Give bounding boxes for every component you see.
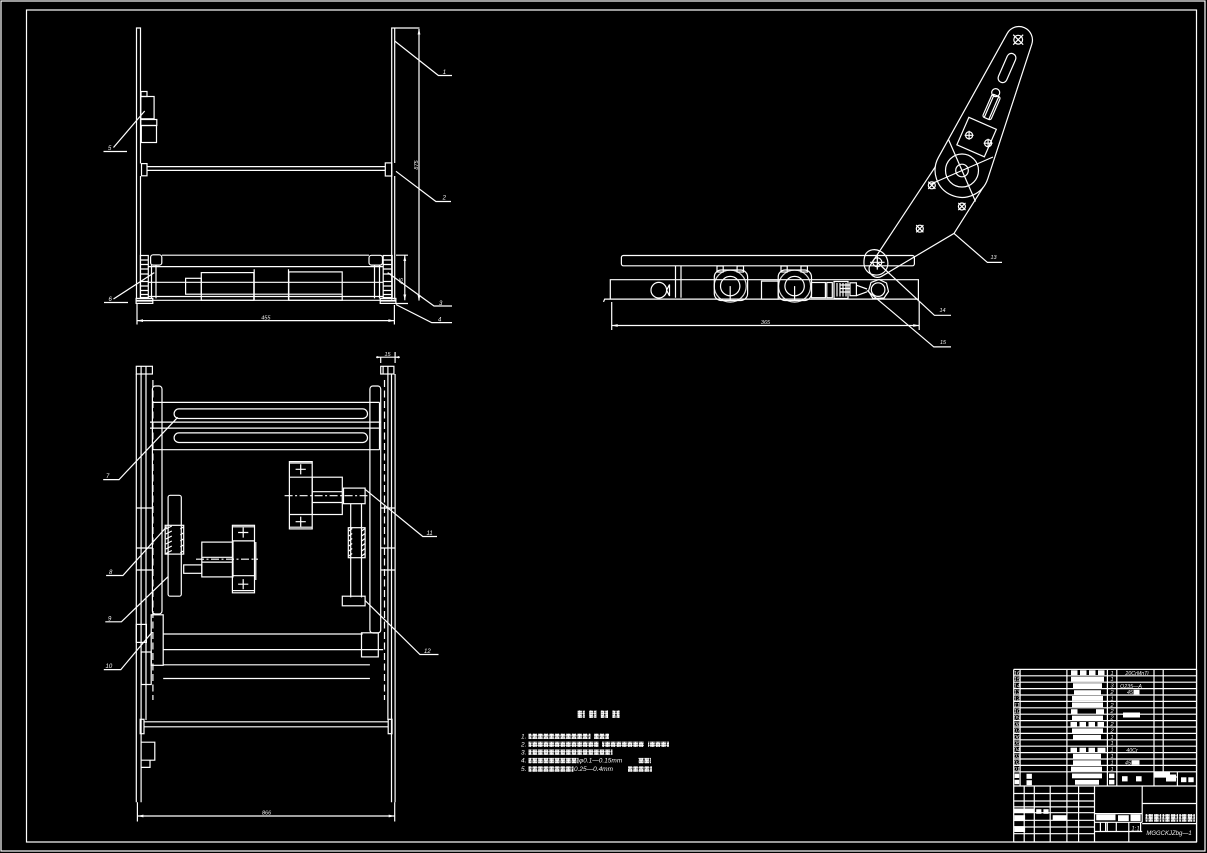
svg-text:15: 15 [384,352,391,358]
svg-text:01: 01 [1014,767,1020,773]
svg-text:2.: 2. [520,741,527,748]
svg-text:15: 15 [1014,677,1021,683]
svg-text:3.: 3. [521,749,527,756]
svg-text:875: 875 [414,159,420,169]
svg-text:15: 15 [940,340,947,346]
svg-text:365: 365 [761,320,771,326]
svg-text:03: 03 [1014,754,1021,760]
svg-text:1: 1 [1110,677,1113,683]
svg-text:11: 11 [1014,703,1020,709]
svg-text:02: 02 [1014,760,1021,766]
svg-text:09: 09 [1014,716,1020,722]
svg-text:Q235—A: Q235—A [1120,684,1142,690]
svg-text:13: 13 [991,255,998,261]
svg-text:10: 10 [106,664,113,670]
svg-text:10: 10 [1014,709,1021,715]
svg-text:1: 1 [1110,696,1113,702]
svg-text:1:1: 1:1 [1131,827,1139,833]
svg-text:45: 45 [1127,690,1133,696]
svg-text:06: 06 [1014,735,1021,741]
svg-text:05: 05 [1014,741,1021,747]
svg-text:14: 14 [940,308,946,314]
svg-text:13: 13 [1014,690,1021,696]
svg-text:1: 1 [1110,767,1113,773]
svg-text:07: 07 [1014,728,1021,734]
svg-text:1: 1 [1110,671,1113,677]
svg-text:1: 1 [1110,741,1113,747]
svg-text:12: 12 [1014,696,1021,702]
svg-text:MGGCKJZbg—1: MGGCKJZbg—1 [1146,831,1191,837]
svg-text:08: 08 [1014,722,1021,728]
svg-text:1: 1 [1110,760,1113,766]
svg-text:1: 1 [1110,735,1113,741]
svg-text:1: 1 [1110,748,1113,754]
svg-text:2: 2 [442,195,447,201]
svg-text:φ0.1—0.15mm: φ0.1—0.15mm [579,758,623,765]
svg-text:45: 45 [399,277,405,284]
svg-text:20CrMnTi: 20CrMnTi [1124,671,1149,677]
svg-text:5.: 5. [521,766,527,773]
svg-text:1: 1 [443,70,446,76]
svg-text:45: 45 [1125,761,1131,767]
svg-text:0.25—0.4mm: 0.25—0.4mm [574,766,614,773]
svg-text:4.: 4. [521,758,527,765]
svg-text:04: 04 [1014,748,1020,754]
svg-text:12: 12 [424,649,431,655]
svg-text:11: 11 [427,531,433,537]
svg-text:40Cr: 40Cr [1126,748,1138,754]
svg-text:1: 1 [1110,754,1113,760]
svg-text:16: 16 [1014,671,1021,677]
svg-text:14: 14 [1014,684,1020,690]
svg-text:866: 866 [262,811,272,817]
svg-text:1.: 1. [521,734,527,741]
svg-text:455: 455 [261,315,271,321]
